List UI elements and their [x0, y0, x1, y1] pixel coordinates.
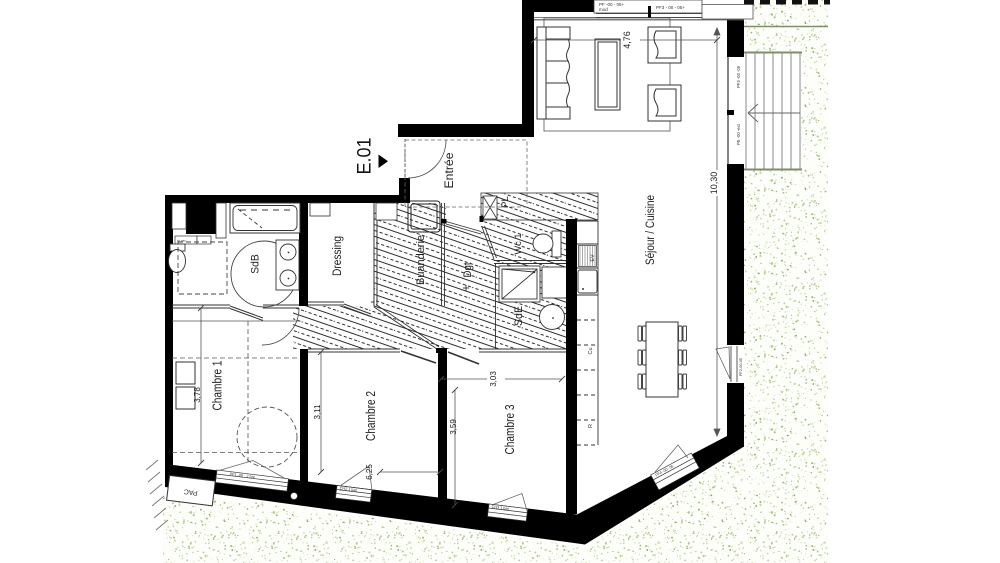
svg-text:Chambre 2: Chambre 2: [363, 391, 378, 441]
svg-text:PF3 -00 -05: PF3 -00 -05: [736, 65, 741, 88]
svg-text:Chambre 3: Chambre 3: [502, 405, 517, 455]
svg-text:Dressing: Dressing: [332, 236, 344, 276]
svg-text:4,76: 4,76: [622, 31, 632, 49]
svg-text:SdB: SdB: [250, 254, 262, 274]
svg-text:Buanderie: Buanderie: [415, 235, 427, 285]
svg-text:Entrée: Entrée: [442, 152, 456, 188]
svg-text:10,30: 10,30: [709, 172, 719, 195]
svg-text:EV: EV: [590, 254, 596, 262]
svg-text:Séjour / Cuisine: Séjour / Cuisine: [645, 195, 657, 265]
svg-text:E.01: E.01: [354, 138, 376, 175]
svg-text:Dgt: Dgt: [462, 263, 474, 278]
svg-text:R: R: [588, 424, 594, 428]
svg-text:SdE: SdE: [513, 306, 525, 326]
svg-text:PF2-00-05: PF2-00-05: [739, 358, 743, 376]
svg-text:mod: mod: [599, 7, 608, 12]
svg-text:Chambre 1: Chambre 1: [210, 361, 225, 411]
svg-text:3,11: 3,11: [313, 404, 322, 420]
svg-text:3,59: 3,59: [449, 419, 458, 435]
svg-text:3,03: 3,03: [489, 371, 498, 387]
svg-text:Wc 1: Wc 1: [513, 234, 524, 255]
svg-text:PF3 - 00 - 05+: PF3 - 00 - 05+: [656, 5, 685, 10]
svg-text:Cu: Cu: [588, 347, 594, 354]
svg-text:PL: PL: [500, 196, 511, 208]
svg-text:PE -00 -ext: PE -00 -ext: [736, 123, 741, 145]
svg-text:3,78: 3,78: [193, 387, 202, 403]
svg-text:6,25: 6,25: [365, 464, 374, 480]
